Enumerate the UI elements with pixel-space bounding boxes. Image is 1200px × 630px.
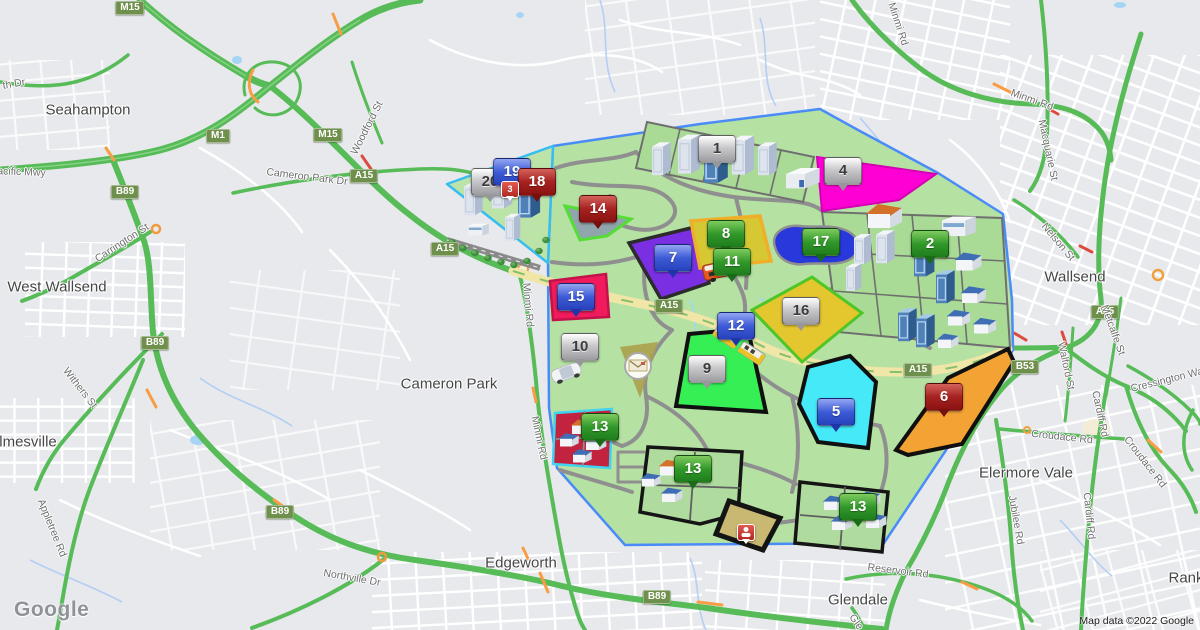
park-area <box>1082 419 1110 437</box>
map-marker-6[interactable]: 6 <box>925 383 963 411</box>
map-marker-9[interactable]: 9 <box>688 355 726 383</box>
map-marker-7[interactable]: 7 <box>654 244 692 272</box>
google-logo[interactable]: Google <box>14 598 89 622</box>
map-marker-14[interactable]: 14 <box>579 195 617 223</box>
map-marker-15[interactable]: 15 <box>557 283 595 311</box>
map-marker-11[interactable]: 11 <box>713 248 751 276</box>
map-marker-13[interactable]: 13 <box>581 413 619 441</box>
map-marker-13-2[interactable]: 13 <box>674 455 712 483</box>
base-map <box>0 0 1200 630</box>
map-marker-2[interactable]: 2 <box>911 230 949 258</box>
map-marker-5[interactable]: 5 <box>817 398 855 426</box>
map-marker-17[interactable]: 17 <box>802 228 840 256</box>
badge-3[interactable]: 3 <box>501 181 519 198</box>
construction-badge[interactable] <box>737 524 755 541</box>
map-canvas[interactable]: M15M1M15A15B89B89B89B89A15A15A15A15B53 S… <box>0 0 1200 630</box>
map-marker-8[interactable]: 8 <box>707 220 745 248</box>
map-marker-10[interactable]: 10 <box>561 333 599 361</box>
envelope-icon <box>629 360 647 371</box>
map-marker-4[interactable]: 4 <box>824 157 862 185</box>
map-attribution: Map data ©2022 Google <box>1079 615 1194 627</box>
map-marker-1[interactable]: 1 <box>698 135 736 163</box>
map-marker-13-3[interactable]: 13 <box>839 493 877 521</box>
map-marker-18[interactable]: 18 <box>518 168 556 196</box>
map-marker-12[interactable]: 12 <box>717 312 755 340</box>
map-marker-16[interactable]: 16 <box>782 297 820 325</box>
